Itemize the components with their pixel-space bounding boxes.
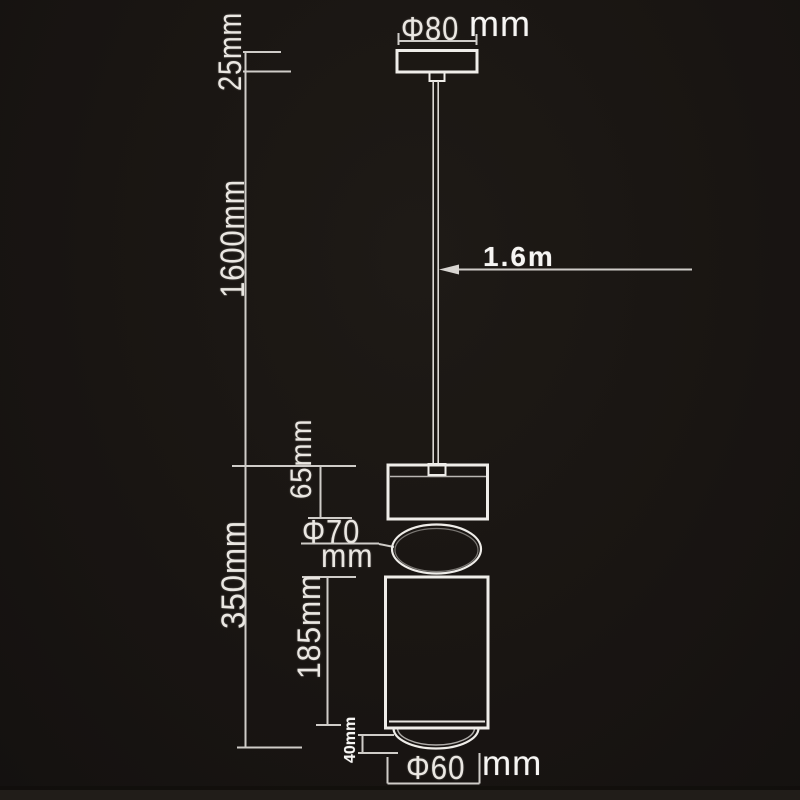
body-height-label: 185mm	[293, 574, 325, 679]
sphere-joint	[392, 525, 481, 574]
sphere-joint-inner-contour	[395, 529, 478, 572]
cable-length-arrowhead	[439, 265, 459, 275]
canopy-diameter-unit-label: mm	[469, 6, 531, 42]
lamp-head	[388, 465, 488, 519]
cable-length-label: 1600mm	[216, 179, 250, 298]
ceiling-canopy	[397, 51, 477, 73]
lamp-drawing	[386, 51, 489, 749]
head-height-label: 65mm	[287, 419, 317, 499]
canopy-diameter-label: Φ80	[401, 12, 459, 45]
dimension-drawing-canvas: 25mm 1600mm 350mm 65mm 185mm 40mm Φ80 mm…	[0, 0, 800, 800]
bottom-strip	[0, 790, 800, 800]
sphere-diameter-unit-label: mm	[321, 539, 373, 572]
dome-height-label: 40mm	[343, 717, 359, 763]
lamp-height-label: 350mm	[217, 520, 251, 629]
bottom-diameter-unit-label: mm	[482, 746, 542, 781]
lamp-body	[386, 577, 489, 728]
bottom-diameter-label: Φ60	[406, 751, 465, 784]
lamp-linework	[0, 0, 800, 800]
bottom-dome-inner	[398, 728, 475, 745]
canopy-height-label: 25mm	[214, 12, 246, 91]
cable-length-meters-label: 1.6m	[483, 243, 555, 271]
